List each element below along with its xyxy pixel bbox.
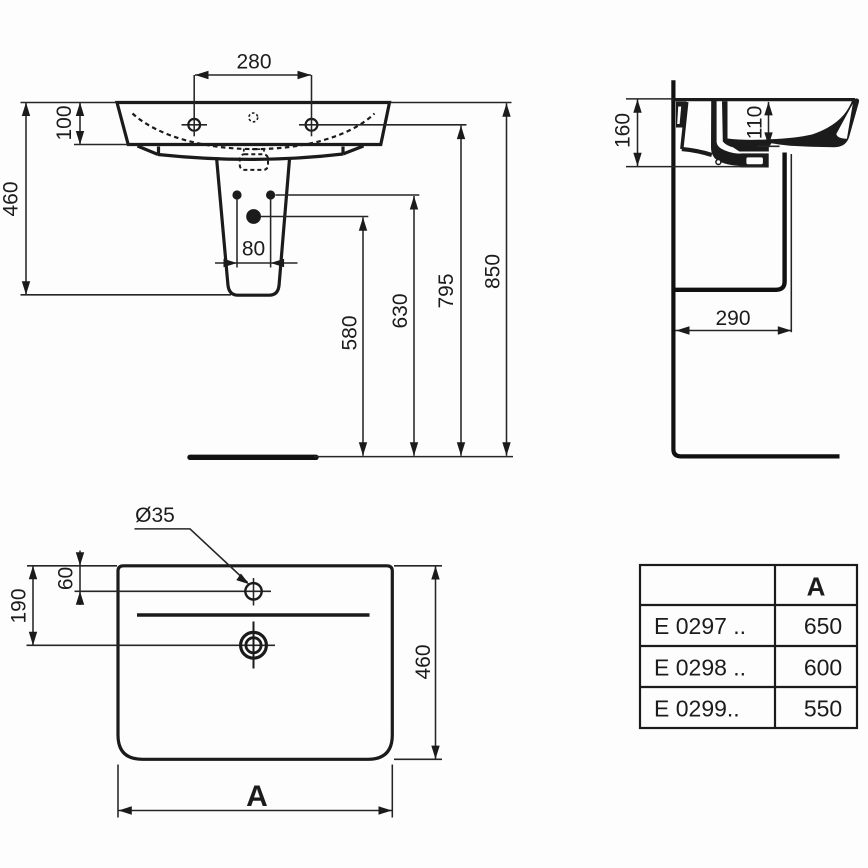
svg-text:280: 280 bbox=[236, 50, 271, 73]
svg-text:60: 60 bbox=[54, 567, 77, 590]
svg-text:E 0297 ..: E 0297 .. bbox=[654, 613, 746, 639]
svg-text:190: 190 bbox=[7, 588, 30, 623]
svg-text:80: 80 bbox=[242, 238, 265, 261]
svg-text:460: 460 bbox=[412, 644, 435, 679]
svg-text:160: 160 bbox=[611, 113, 634, 148]
svg-text:100: 100 bbox=[53, 105, 76, 140]
svg-text:795: 795 bbox=[435, 273, 458, 308]
svg-text:580: 580 bbox=[338, 315, 361, 350]
svg-text:E 0299..: E 0299.. bbox=[654, 696, 740, 722]
svg-text:E 0298 ..: E 0298 .. bbox=[654, 655, 746, 681]
svg-text:110: 110 bbox=[743, 106, 766, 139]
svg-text:460: 460 bbox=[0, 181, 22, 216]
svg-text:A: A bbox=[246, 780, 268, 813]
svg-text:550: 550 bbox=[804, 696, 842, 722]
svg-text:600: 600 bbox=[804, 655, 842, 681]
svg-text:650: 650 bbox=[804, 613, 842, 639]
svg-text:Ø35: Ø35 bbox=[135, 504, 175, 527]
svg-text:A: A bbox=[807, 572, 826, 602]
svg-text:290: 290 bbox=[715, 307, 750, 330]
svg-text:850: 850 bbox=[481, 254, 504, 289]
svg-text:630: 630 bbox=[389, 293, 412, 328]
